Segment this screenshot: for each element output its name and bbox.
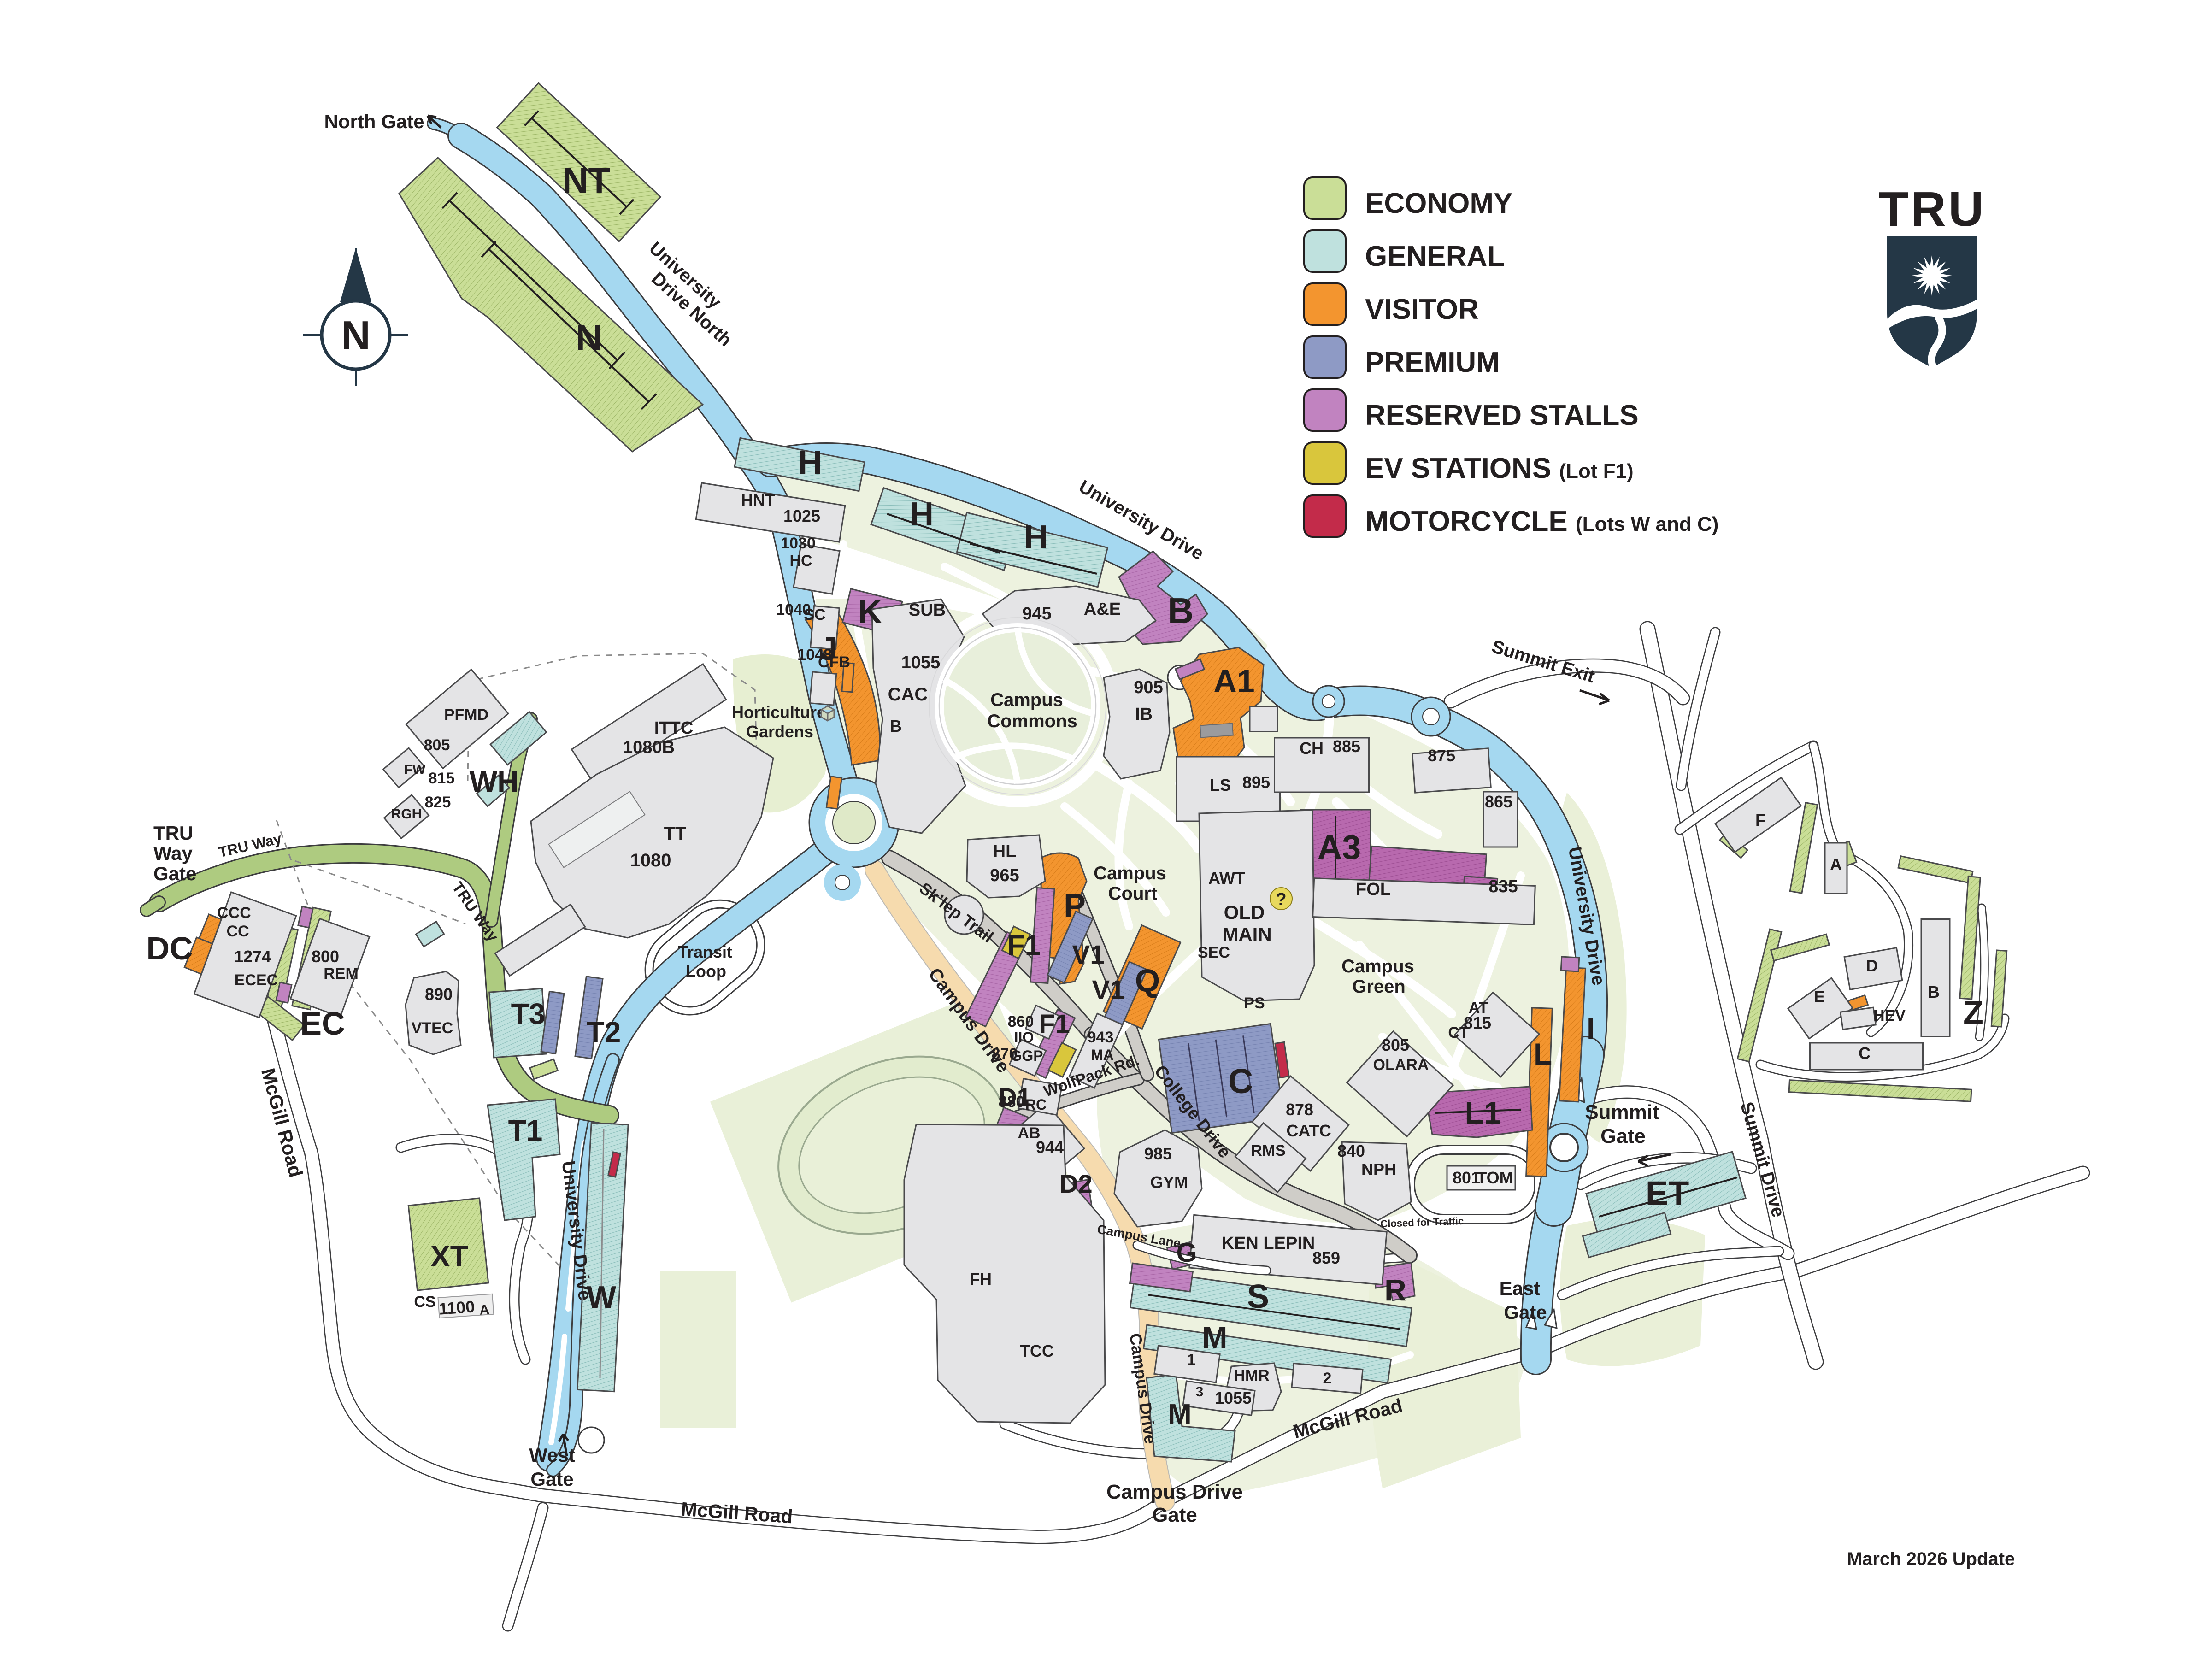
svg-text:West: West — [529, 1444, 575, 1466]
svg-text:OLARA: OLARA — [1373, 1056, 1429, 1074]
svg-text:RESERVED STALLS: RESERVED STALLS — [1365, 400, 1639, 431]
svg-text:LS: LS — [1210, 776, 1231, 794]
svg-text:HEV: HEV — [1873, 1007, 1906, 1024]
svg-text:PS: PS — [1244, 994, 1265, 1012]
svg-text:J: J — [819, 630, 838, 667]
svg-text:Court: Court — [1108, 883, 1158, 904]
svg-text:TRU: TRU — [153, 822, 193, 844]
svg-text:1025: 1025 — [783, 506, 820, 525]
svg-text:V1: V1 — [1092, 975, 1125, 1005]
svg-text:825: 825 — [425, 794, 451, 811]
svg-text:1030: 1030 — [781, 535, 816, 552]
svg-text:945: 945 — [1022, 604, 1051, 624]
svg-text:NT: NT — [562, 160, 610, 200]
svg-text:CCC: CCC — [217, 904, 251, 922]
svg-text:3: 3 — [1196, 1384, 1204, 1400]
svg-text:815: 815 — [429, 770, 455, 787]
svg-text:CC: CC — [226, 923, 249, 940]
svg-text:?: ? — [1276, 890, 1286, 909]
svg-text:N: N — [576, 317, 602, 358]
svg-text:890: 890 — [425, 985, 453, 1004]
svg-text:K: K — [858, 594, 882, 630]
svg-text:RMS: RMS — [1251, 1142, 1286, 1159]
svg-text:860: 860 — [1008, 1013, 1034, 1030]
svg-text:1: 1 — [1187, 1351, 1196, 1369]
svg-text:ECEC: ECEC — [235, 971, 278, 989]
svg-text:North Gate: North Gate — [324, 111, 424, 132]
svg-text:H: H — [798, 444, 822, 481]
svg-text:N: N — [341, 312, 371, 358]
svg-text:SUB: SUB — [909, 600, 946, 620]
svg-text:F1: F1 — [1039, 1009, 1070, 1039]
svg-text:Gate: Gate — [1600, 1125, 1646, 1147]
svg-text:D: D — [1866, 956, 1878, 975]
svg-text:VISITOR: VISITOR — [1365, 294, 1479, 325]
svg-text:GGP: GGP — [1010, 1047, 1043, 1064]
svg-text:800: 800 — [312, 947, 339, 966]
svg-text:DC: DC — [146, 930, 193, 966]
svg-text:Z: Z — [1963, 994, 1983, 1031]
svg-text:905: 905 — [1134, 678, 1163, 697]
svg-text:Campus: Campus — [1094, 863, 1166, 883]
svg-text:V1: V1 — [1072, 940, 1105, 970]
svg-text:885: 885 — [1333, 737, 1360, 756]
svg-text:B: B — [1168, 590, 1194, 631]
svg-text:XT: XT — [430, 1240, 468, 1273]
svg-text:Gate: Gate — [1504, 1301, 1547, 1323]
svg-text:L: L — [1534, 1037, 1552, 1071]
svg-text:MA: MA — [1091, 1047, 1114, 1063]
svg-text:GYM: GYM — [1150, 1173, 1188, 1192]
svg-text:Commons: Commons — [987, 711, 1077, 731]
svg-text:MAIN: MAIN — [1222, 924, 1271, 945]
svg-text:TRU: TRU — [1879, 182, 1986, 236]
svg-text:NPH: NPH — [1361, 1160, 1396, 1179]
svg-text:G: G — [1176, 1238, 1197, 1268]
svg-text:Horticulture: Horticulture — [732, 703, 826, 722]
svg-text:H: H — [1024, 519, 1048, 556]
svg-text:HNT: HNT — [741, 491, 775, 510]
svg-text:CATC: CATC — [1286, 1121, 1331, 1140]
svg-text:865: 865 — [1485, 792, 1512, 811]
svg-text:VTEC: VTEC — [412, 1019, 453, 1037]
svg-text:L1: L1 — [1465, 1095, 1501, 1130]
svg-text:KEN LEPIN: KEN LEPIN — [1222, 1234, 1315, 1253]
svg-text:Campus: Campus — [1341, 956, 1414, 977]
svg-text:SC: SC — [804, 606, 825, 624]
svg-text:IB: IB — [1135, 705, 1153, 724]
svg-text:944: 944 — [1036, 1138, 1064, 1157]
svg-text:R: R — [1384, 1273, 1406, 1307]
svg-text:HC: HC — [789, 552, 812, 570]
svg-text:805: 805 — [1382, 1035, 1409, 1054]
svg-text:1100: 1100 — [438, 1297, 476, 1318]
svg-text:Green: Green — [1352, 977, 1406, 997]
svg-text:TOM: TOM — [1477, 1168, 1513, 1187]
svg-text:805: 805 — [424, 736, 450, 754]
svg-text:1080: 1080 — [630, 850, 671, 871]
svg-text:D1: D1 — [998, 1082, 1031, 1112]
svg-text:SEC: SEC — [1198, 944, 1230, 961]
svg-text:ITTC: ITTC — [654, 718, 693, 738]
svg-text:AWT: AWT — [1208, 869, 1245, 888]
svg-text:FW: FW — [404, 762, 426, 777]
svg-text:895: 895 — [1242, 773, 1270, 792]
svg-text:801: 801 — [1453, 1168, 1480, 1187]
svg-text:B: B — [890, 717, 902, 735]
svg-text:A: A — [479, 1302, 490, 1318]
svg-text:840: 840 — [1337, 1141, 1365, 1160]
svg-text:Gate: Gate — [1152, 1504, 1197, 1526]
svg-text:HL: HL — [993, 842, 1017, 861]
svg-text:CS: CS — [414, 1293, 435, 1311]
svg-text:March 2026 Update: March 2026 Update — [1847, 1549, 2015, 1569]
svg-text:A3: A3 — [1318, 828, 1361, 866]
svg-text:A&E: A&E — [1084, 600, 1121, 619]
svg-text:T3: T3 — [511, 997, 546, 1030]
svg-text:C: C — [1859, 1044, 1871, 1063]
svg-text:S: S — [1247, 1278, 1269, 1315]
svg-text:D2: D2 — [1059, 1169, 1093, 1198]
svg-text:WH: WH — [470, 765, 519, 798]
svg-text:B: B — [1928, 982, 1940, 1001]
svg-text:TCC: TCC — [1020, 1341, 1054, 1360]
svg-text:M: M — [1202, 1320, 1228, 1354]
svg-text:A1: A1 — [1213, 663, 1254, 699]
svg-text:ECONOMY: ECONOMY — [1365, 188, 1512, 219]
svg-text:GENERAL: GENERAL — [1365, 241, 1505, 272]
svg-text:2: 2 — [1323, 1370, 1332, 1387]
svg-text:I: I — [1587, 1012, 1595, 1046]
svg-text:F1: F1 — [1007, 930, 1041, 961]
svg-text:OLD: OLD — [1224, 901, 1265, 923]
svg-text:943: 943 — [1088, 1029, 1114, 1046]
svg-text:985: 985 — [1144, 1144, 1172, 1163]
svg-text:Gardens: Gardens — [746, 722, 813, 741]
svg-text:Q: Q — [1135, 963, 1160, 999]
svg-text:PREMIUM: PREMIUM — [1365, 347, 1500, 378]
svg-text:C: C — [1228, 1062, 1253, 1100]
svg-text:CH: CH — [1300, 739, 1324, 758]
svg-text:1274: 1274 — [234, 947, 271, 966]
svg-text:IIO: IIO — [1014, 1029, 1034, 1046]
svg-text:A: A — [1830, 855, 1842, 874]
svg-text:EC: EC — [300, 1006, 345, 1041]
svg-text:Gate: Gate — [530, 1468, 573, 1490]
svg-text:F: F — [1755, 811, 1765, 829]
svg-text:CT: CT — [1448, 1024, 1469, 1041]
svg-text:878: 878 — [1286, 1100, 1313, 1119]
svg-text:PFMD: PFMD — [444, 706, 488, 724]
svg-text:T2: T2 — [587, 1016, 621, 1049]
svg-text:1055: 1055 — [901, 653, 941, 672]
svg-text:FOL: FOL — [1356, 880, 1391, 899]
svg-text:M: M — [1168, 1399, 1192, 1430]
svg-text:H: H — [910, 496, 934, 533]
svg-text:ET: ET — [1646, 1174, 1689, 1212]
svg-text:T1: T1 — [508, 1114, 543, 1147]
svg-text:E: E — [1814, 987, 1825, 1006]
svg-text:1080B: 1080B — [623, 738, 675, 757]
svg-text:835: 835 — [1488, 877, 1518, 896]
svg-text:Transit: Transit — [678, 942, 732, 961]
svg-text:FH: FH — [970, 1270, 992, 1288]
svg-text:East: East — [1500, 1277, 1541, 1299]
svg-text:Way: Way — [153, 842, 193, 864]
svg-text:Gate: Gate — [153, 863, 196, 884]
svg-text:Summit: Summit — [1585, 1101, 1659, 1124]
svg-text:859: 859 — [1312, 1248, 1340, 1267]
svg-text:1055: 1055 — [1215, 1388, 1252, 1407]
svg-text:CAC: CAC — [888, 684, 928, 705]
svg-text:TT: TT — [664, 824, 687, 844]
svg-text:REM: REM — [324, 965, 359, 982]
svg-text:Loop: Loop — [686, 962, 726, 981]
svg-text:RGH: RGH — [391, 806, 422, 822]
svg-text:875: 875 — [1428, 746, 1455, 765]
svg-text:Campus Drive: Campus Drive — [1106, 1481, 1243, 1503]
svg-text:P: P — [1064, 888, 1086, 924]
svg-text:HMR: HMR — [1234, 1367, 1269, 1384]
svg-text:W: W — [587, 1280, 617, 1315]
svg-text:Campus: Campus — [990, 690, 1063, 710]
svg-text:965: 965 — [990, 866, 1019, 885]
